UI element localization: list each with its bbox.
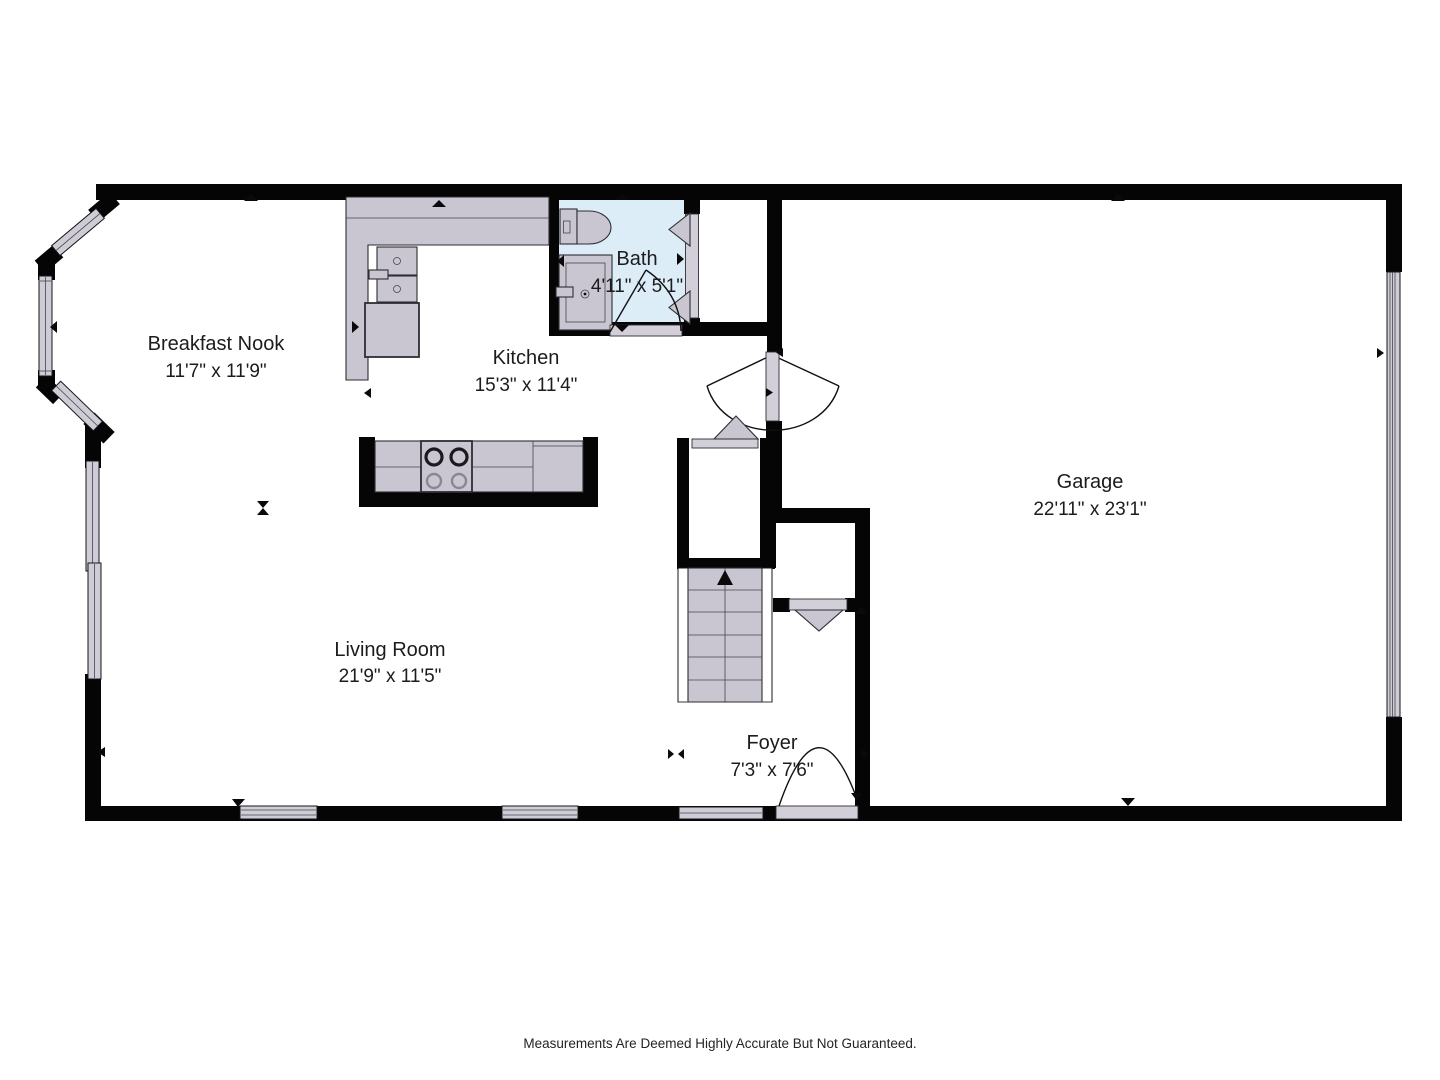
hall-closet-door (692, 416, 758, 448)
floor-plan: Breakfast Nook 11'7" x 11'9" Kitchen 15'… (0, 0, 1440, 1080)
garage-door (1387, 272, 1400, 717)
kitchen-label: Kitchen (493, 347, 560, 369)
cooktop (421, 441, 472, 492)
exterior-walls (85, 184, 1402, 821)
stairs (678, 568, 772, 702)
kitchen-sink (369, 247, 417, 302)
bath-dims: 4'11" x 5'1" (591, 276, 683, 297)
bay-window-lower-pane (52, 381, 103, 431)
garage-dims: 22'11" x 23'1" (1033, 499, 1146, 520)
garage-label: Garage (1057, 471, 1124, 493)
front-door (776, 748, 862, 819)
breakfast-nook-dims: 11'7" x 11'9" (165, 361, 266, 382)
living-room-side-windows (86, 461, 101, 679)
kitchen-dims: 15'3" x 11'4" (475, 375, 578, 396)
dimension-markers (50, 194, 1384, 807)
bay-window (35, 192, 120, 444)
bay-window-center-pane (39, 276, 52, 376)
bath-label: Bath (616, 248, 657, 270)
dishwasher-appliance (365, 303, 419, 357)
disclaimer-text: Measurements Are Deemed Highly Accurate … (523, 1036, 916, 1051)
garage-entry-door (707, 348, 839, 430)
foyer-label: Foyer (746, 732, 797, 754)
bay-window-upper-pane (52, 208, 105, 255)
breakfast-nook-label: Breakfast Nook (148, 333, 286, 355)
foyer-closet-door (789, 599, 847, 631)
living-room-label: Living Room (334, 639, 445, 661)
kitchen-island (359, 437, 598, 507)
living-room-dims: 21'9" x 11'5" (339, 666, 442, 687)
foyer-dims: 7'3" x 7'6" (730, 760, 813, 781)
